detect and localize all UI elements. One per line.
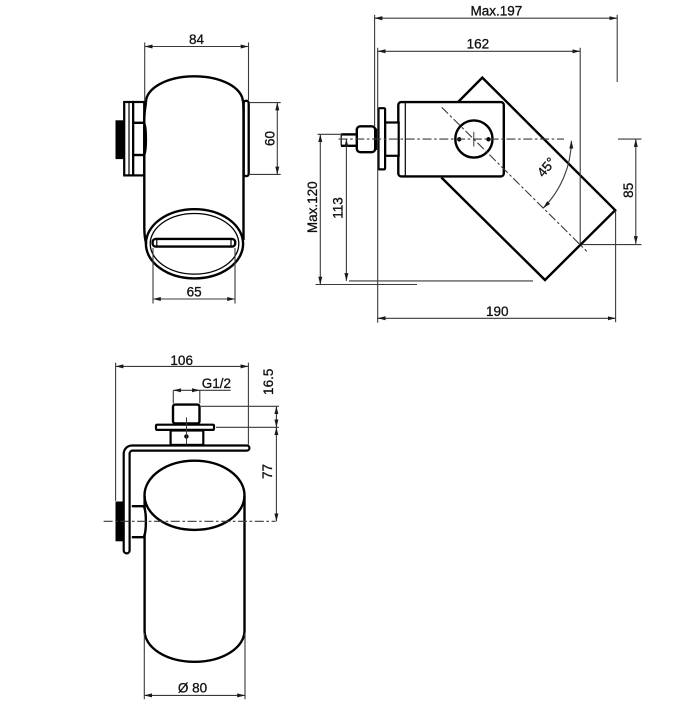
svg-text:190: 190 <box>486 304 509 319</box>
svg-text:162: 162 <box>467 37 490 52</box>
svg-text:Max.197: Max.197 <box>471 3 523 18</box>
svg-text:106: 106 <box>170 353 193 368</box>
svg-text:77: 77 <box>260 464 275 479</box>
svg-text:60: 60 <box>262 131 277 146</box>
svg-text:G1/2: G1/2 <box>202 376 231 391</box>
svg-text:65: 65 <box>187 284 202 299</box>
svg-text:16.5: 16.5 <box>261 369 276 395</box>
svg-text:84: 84 <box>189 32 205 47</box>
svg-text:113: 113 <box>330 197 345 219</box>
svg-text:Ø 80: Ø 80 <box>178 681 207 696</box>
svg-text:85: 85 <box>621 183 636 198</box>
svg-text:Max.120: Max.120 <box>305 181 320 233</box>
